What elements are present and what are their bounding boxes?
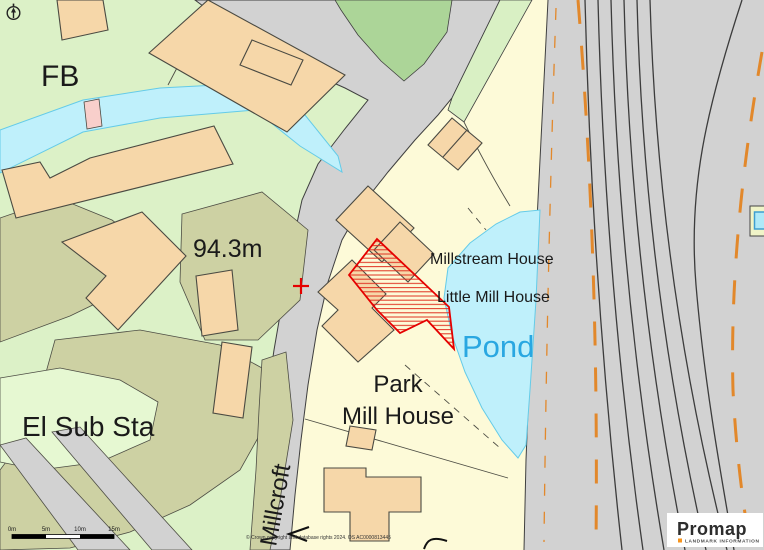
label-mill-house: Mill House <box>342 403 454 430</box>
label-little-mill-house: Little Mill House <box>437 289 550 306</box>
promap-logo: Promap LANDMARK INFORMATION <box>667 513 763 547</box>
label-spot-height: 94.3m <box>193 235 262 263</box>
label-fb: FB <box>41 60 79 93</box>
building-small-yard <box>196 270 238 336</box>
copyright-attribution: © Crown copyright and database rights 20… <box>246 534 391 541</box>
railway-corridor <box>524 0 764 550</box>
promap-logo-name: Promap <box>677 519 747 539</box>
scale-tick-15: 15m <box>108 527 120 533</box>
map-symbol-icon <box>750 206 764 236</box>
landmark-bullet-icon <box>678 539 682 543</box>
scale-tick-5: 5m <box>42 527 50 533</box>
scale-tick-0: 0m <box>8 527 16 533</box>
footbridge <box>84 99 102 129</box>
promap-logo-tagline: LANDMARK INFORMATION <box>685 539 760 545</box>
label-park: Park <box>373 371 423 398</box>
map-canvas[interactable]: FB 94.3m El Sub Sta Millstream House Lit… <box>0 0 764 550</box>
label-el-sub-sta: El Sub Sta <box>22 411 155 442</box>
label-pond: Pond <box>462 329 534 364</box>
label-millstream-house: Millstream House <box>430 251 554 268</box>
scale-tick-10: 10m <box>74 527 86 533</box>
